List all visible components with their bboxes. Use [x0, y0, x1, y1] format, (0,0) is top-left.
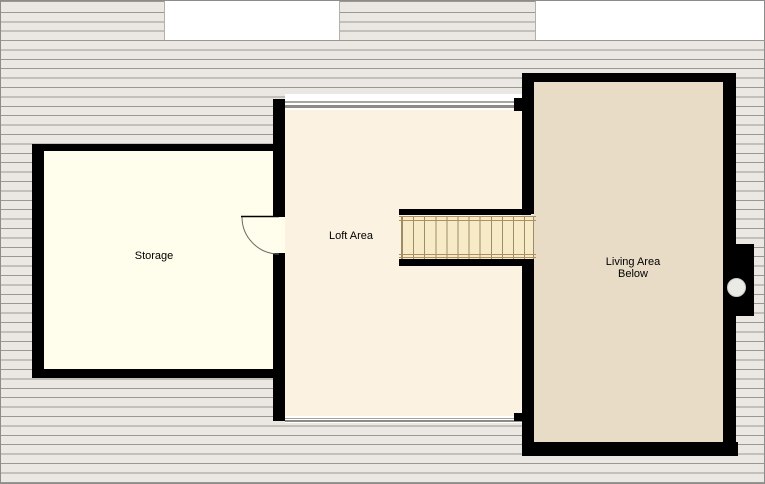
living-wall-left-upper: [522, 73, 534, 214]
staircase-stringer-line: [399, 254, 536, 255]
loft-wall-stub-bottom-right: [514, 413, 522, 421]
roof-shingles-tab-middle: [339, 1, 536, 40]
staircase-wall-bottom: [399, 259, 524, 266]
living-wall-top: [522, 73, 736, 82]
storage-label: Storage: [104, 250, 204, 262]
living-label-line1: Living Area: [581, 256, 685, 268]
storage-wall-bottom: [32, 369, 284, 378]
staircase-stringer-line: [399, 216, 536, 217]
floor-plan: Storage Loft Area Living Area Below: [0, 0, 765, 484]
roof-shingles-tab-left: [1, 1, 165, 40]
loft-edge-top-line2: [285, 105, 522, 108]
living-label: Living Area Below: [581, 256, 685, 280]
loft-edge-bottom-line: [285, 418, 522, 419]
storage-wall-top: [32, 144, 284, 151]
storage-wall-left: [32, 144, 44, 378]
loft-edge-top-line: [285, 101, 522, 103]
loft-edge-bottom-line2: [285, 420, 522, 422]
door-swing-icon: [236, 211, 286, 261]
staircase-stringer-line: [399, 257, 536, 258]
living-wall-bottom: [522, 442, 738, 456]
staircase-wall-top: [399, 209, 531, 215]
living-wall-left-lower: [522, 259, 534, 446]
loft-label: Loft Area: [301, 230, 401, 242]
staircase-stringer-line: [399, 220, 536, 221]
flue-circle-icon: [727, 278, 746, 297]
loft-wall-stub-top-right: [514, 98, 522, 111]
living-label-line2: Below: [581, 268, 685, 280]
